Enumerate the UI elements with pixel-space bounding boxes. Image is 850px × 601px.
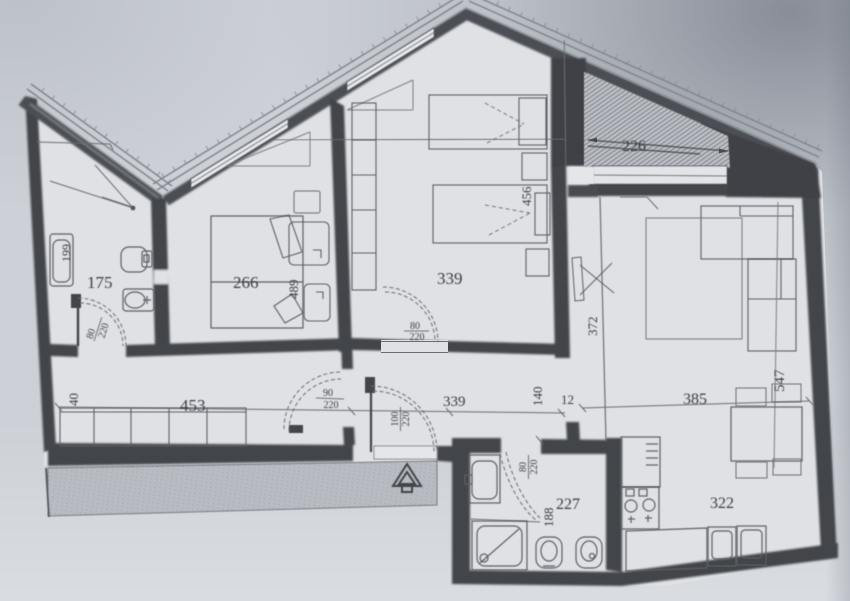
svg-text:160: 160 — [574, 138, 586, 155]
svg-text:220: 220 — [529, 460, 540, 475]
svg-text:220: 220 — [324, 400, 339, 411]
svg-text:372: 372 — [585, 317, 600, 337]
svg-text:220: 220 — [410, 332, 425, 343]
svg-text:266: 266 — [233, 273, 259, 292]
svg-text:227: 227 — [556, 496, 580, 513]
svg-text:547: 547 — [772, 369, 788, 392]
svg-text:220: 220 — [401, 412, 412, 427]
svg-text:12: 12 — [561, 392, 574, 407]
svg-text:339: 339 — [443, 394, 466, 410]
svg-text:40: 40 — [66, 393, 81, 406]
svg-text:140: 140 — [530, 387, 545, 407]
svg-text:199: 199 — [59, 244, 73, 262]
svg-text:80: 80 — [518, 462, 529, 472]
svg-text:226: 226 — [622, 138, 646, 155]
svg-text:339: 339 — [437, 269, 463, 288]
svg-text:90: 90 — [323, 388, 333, 399]
svg-text:80: 80 — [410, 321, 420, 332]
svg-text:175: 175 — [87, 273, 113, 292]
svg-text:188: 188 — [541, 508, 556, 528]
svg-text:385: 385 — [683, 391, 707, 408]
svg-text:100: 100 — [390, 412, 401, 427]
svg-text:489: 489 — [286, 280, 301, 300]
svg-text:456: 456 — [519, 186, 534, 206]
svg-text:453: 453 — [180, 396, 206, 415]
svg-text:322: 322 — [710, 495, 734, 512]
